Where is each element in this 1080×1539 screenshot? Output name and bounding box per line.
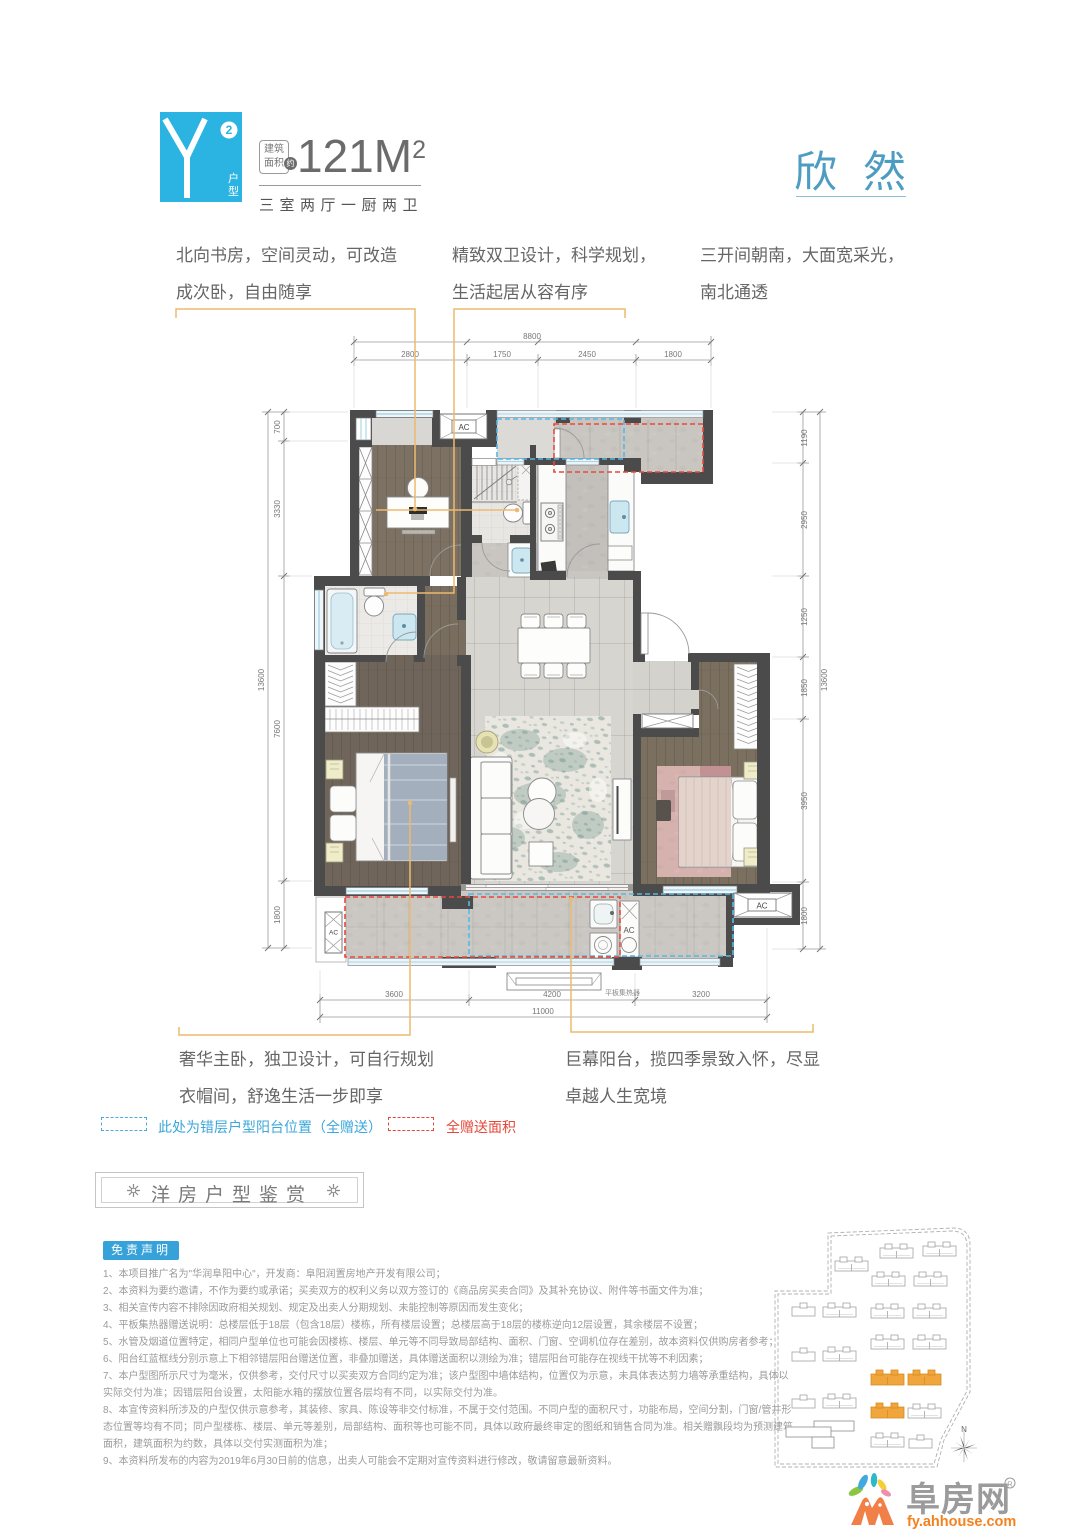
svg-text:1800: 1800 (800, 907, 809, 925)
svg-text:户: 户 (228, 171, 239, 185)
svg-text:AC: AC (329, 930, 338, 937)
svg-text:3330: 3330 (273, 500, 282, 518)
svg-text:11000: 11000 (532, 1007, 554, 1016)
svg-text:13600: 13600 (820, 668, 829, 691)
svg-text:8800: 8800 (523, 332, 541, 341)
svg-text:1800: 1800 (273, 906, 282, 924)
svg-text:AC: AC (756, 902, 767, 911)
svg-text:700: 700 (273, 420, 282, 434)
svg-text:2800: 2800 (401, 350, 419, 359)
svg-text:7600: 7600 (273, 720, 282, 738)
svg-text:1250: 1250 (800, 608, 809, 626)
svg-text:2: 2 (226, 123, 233, 137)
svg-text:型: 型 (228, 184, 239, 198)
svg-text:R: R (1007, 1480, 1013, 1489)
svg-text:fy.ahhouse.com: fy.ahhouse.com (907, 1514, 1016, 1530)
svg-text:2950: 2950 (800, 511, 809, 529)
svg-text:1850: 1850 (800, 679, 809, 697)
svg-text:4200: 4200 (543, 990, 561, 999)
svg-text:3600: 3600 (385, 990, 403, 999)
svg-text:AC: AC (623, 926, 634, 935)
svg-text:1800: 1800 (664, 350, 682, 359)
svg-text:1190: 1190 (800, 429, 809, 447)
svg-text:1750: 1750 (493, 350, 511, 359)
svg-text:2450: 2450 (578, 350, 596, 359)
svg-text:3950: 3950 (800, 792, 809, 810)
svg-text:13600: 13600 (257, 668, 266, 691)
svg-text:AC: AC (458, 423, 469, 432)
svg-text:3200: 3200 (692, 990, 710, 999)
